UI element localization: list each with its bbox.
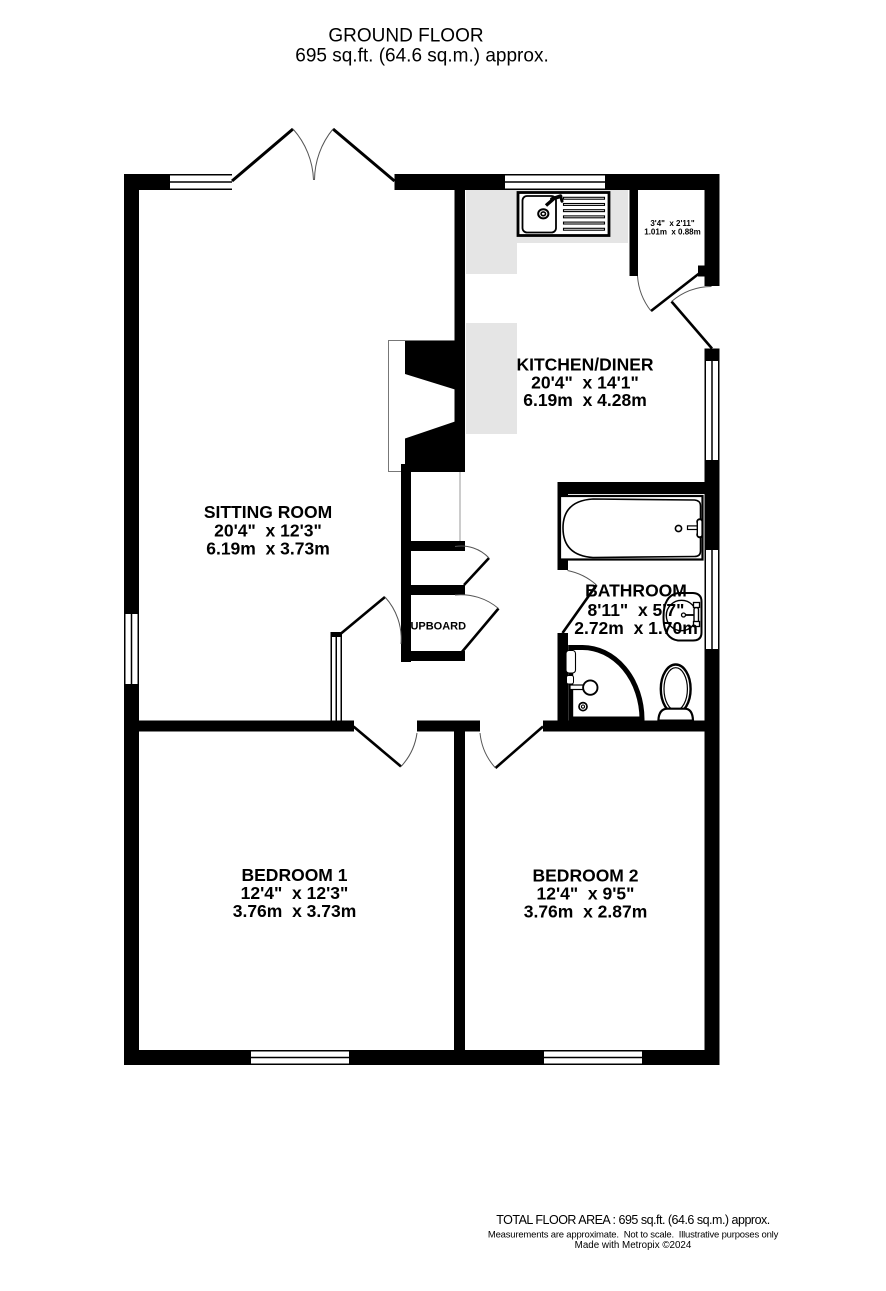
svg-text:1.01m x 0.88m: 1.01m x 0.88m [644, 228, 700, 237]
svg-text:Made with Metropix ©2024: Made with Metropix ©2024 [575, 1240, 692, 1251]
svg-text:12'4" x 12'3": 12'4" x 12'3" [241, 883, 349, 903]
svg-text:GROUND FLOOR: GROUND FLOOR [328, 26, 483, 47]
svg-text:KITCHEN/DINER: KITCHEN/DINER [516, 355, 653, 375]
svg-text:3.76m x 3.73m: 3.76m x 3.73m [233, 901, 357, 921]
svg-text:BATHROOM: BATHROOM [585, 581, 687, 601]
svg-text:20'4" x 12'3": 20'4" x 12'3" [214, 521, 322, 541]
svg-text:2.72m x 1.70m: 2.72m x 1.70m [574, 618, 698, 638]
svg-text:12'4" x 9'5": 12'4" x 9'5" [537, 884, 635, 904]
svg-text:TOTAL FLOOR AREA : 695 sq.ft.: TOTAL FLOOR AREA : 695 sq.ft. (64.6 sq.m… [496, 1213, 770, 1227]
svg-text:6.19m x 3.73m: 6.19m x 3.73m [206, 539, 330, 559]
svg-text:695 sq.ft. (64.6 sq.m.) approx: 695 sq.ft. (64.6 sq.m.) approx. [295, 46, 548, 67]
svg-text:BEDROOM 1: BEDROOM 1 [242, 865, 348, 885]
svg-text:SITTING ROOM: SITTING ROOM [204, 502, 332, 522]
svg-text:8'11" x 5'7": 8'11" x 5'7" [588, 600, 685, 620]
svg-text:CUPBOARD: CUPBOARD [403, 621, 467, 633]
svg-text:6.19m x 4.28m: 6.19m x 4.28m [523, 390, 647, 410]
svg-text:BEDROOM 2: BEDROOM 2 [533, 866, 639, 886]
svg-text:3.76m x 2.87m: 3.76m x 2.87m [524, 902, 648, 922]
svg-text:Measurements are approximate.: Measurements are approximate. Not to sca… [488, 1230, 779, 1241]
